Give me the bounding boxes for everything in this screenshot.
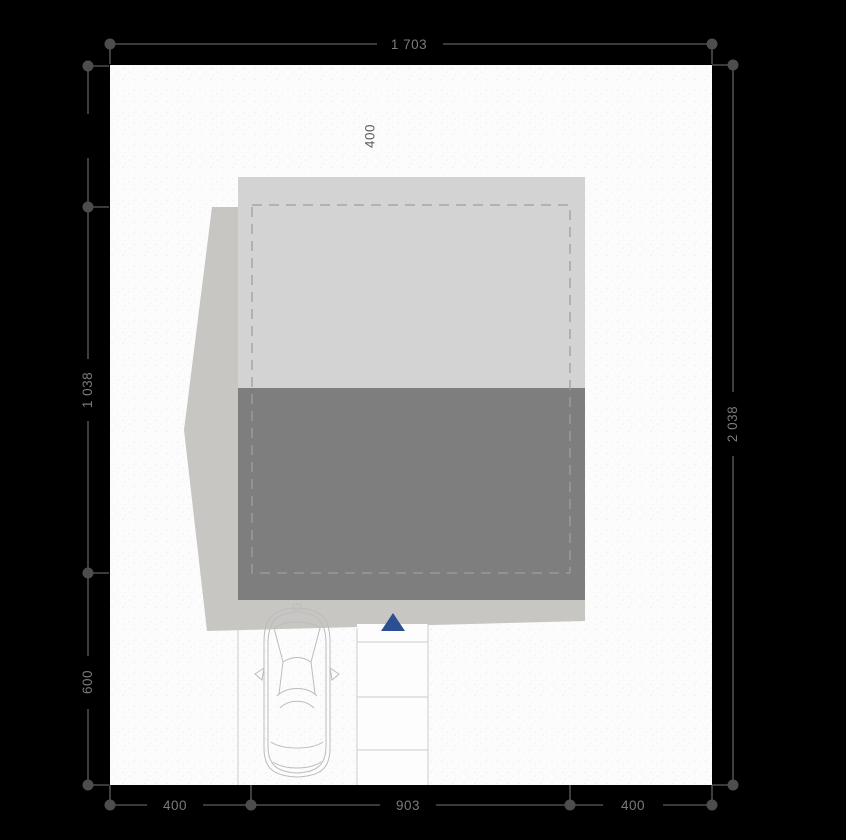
dim-label-building-depth: 1 038	[80, 372, 95, 408]
dim-label-plot-depth: 2 038	[725, 406, 740, 442]
walkway	[357, 624, 428, 785]
site-plan-canvas: 400 1 703 1 038 600	[0, 0, 846, 840]
dimension-bottom: 400 903 400	[105, 785, 718, 813]
dim-label-front-strip: 600	[80, 670, 95, 694]
roof-outline	[238, 177, 585, 388]
building-footprint	[238, 388, 585, 600]
dimension-right: 2 038	[712, 60, 740, 791]
dim-label-plot-width: 1 703	[391, 37, 427, 52]
dimension-left: 1 038 600	[80, 61, 109, 791]
dimension-top: 1 703	[105, 37, 718, 64]
dim-label-building-width: 903	[396, 798, 420, 813]
dim-label-setback-right: 400	[621, 798, 645, 813]
dim-label-setback-left: 400	[163, 798, 187, 813]
site-plan-svg: 400 1 703 1 038 600	[0, 0, 846, 840]
dim-label-setback-top: 400	[363, 124, 378, 148]
